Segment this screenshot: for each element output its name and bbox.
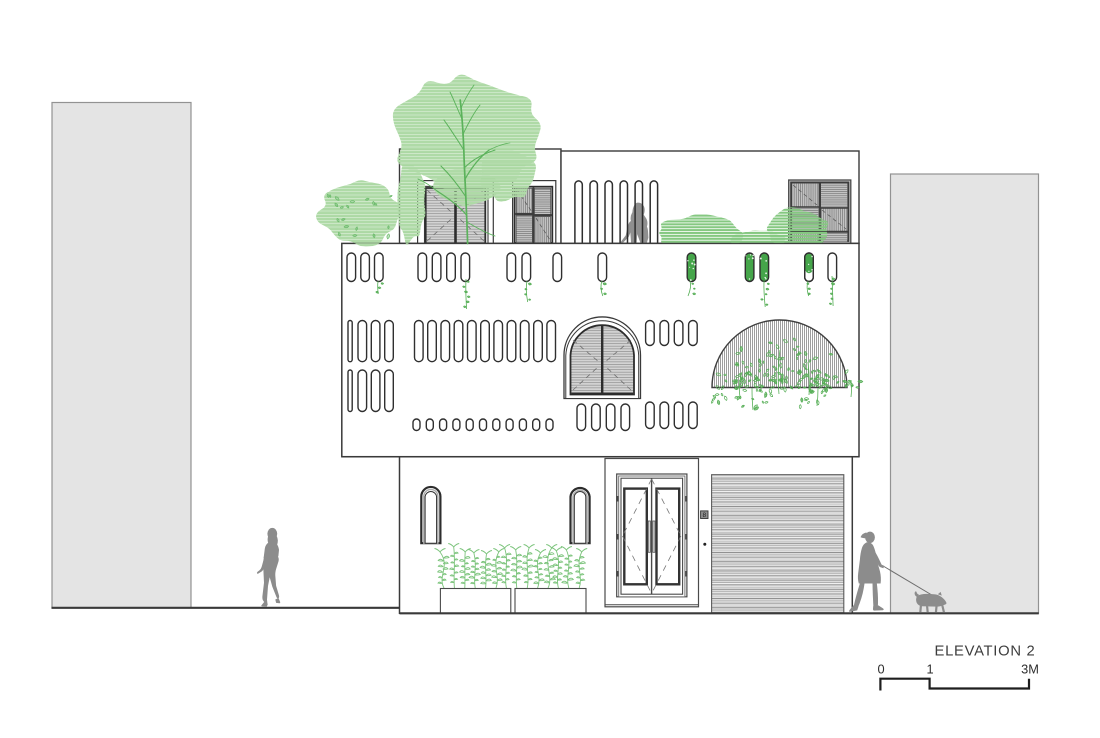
svg-text:8: 8 [702, 512, 706, 519]
svg-text:1: 1 [926, 662, 933, 677]
svg-text:ELEVATION 2: ELEVATION 2 [935, 644, 1036, 660]
svg-text:0: 0 [877, 662, 884, 677]
svg-text:3M: 3M [1021, 662, 1039, 677]
